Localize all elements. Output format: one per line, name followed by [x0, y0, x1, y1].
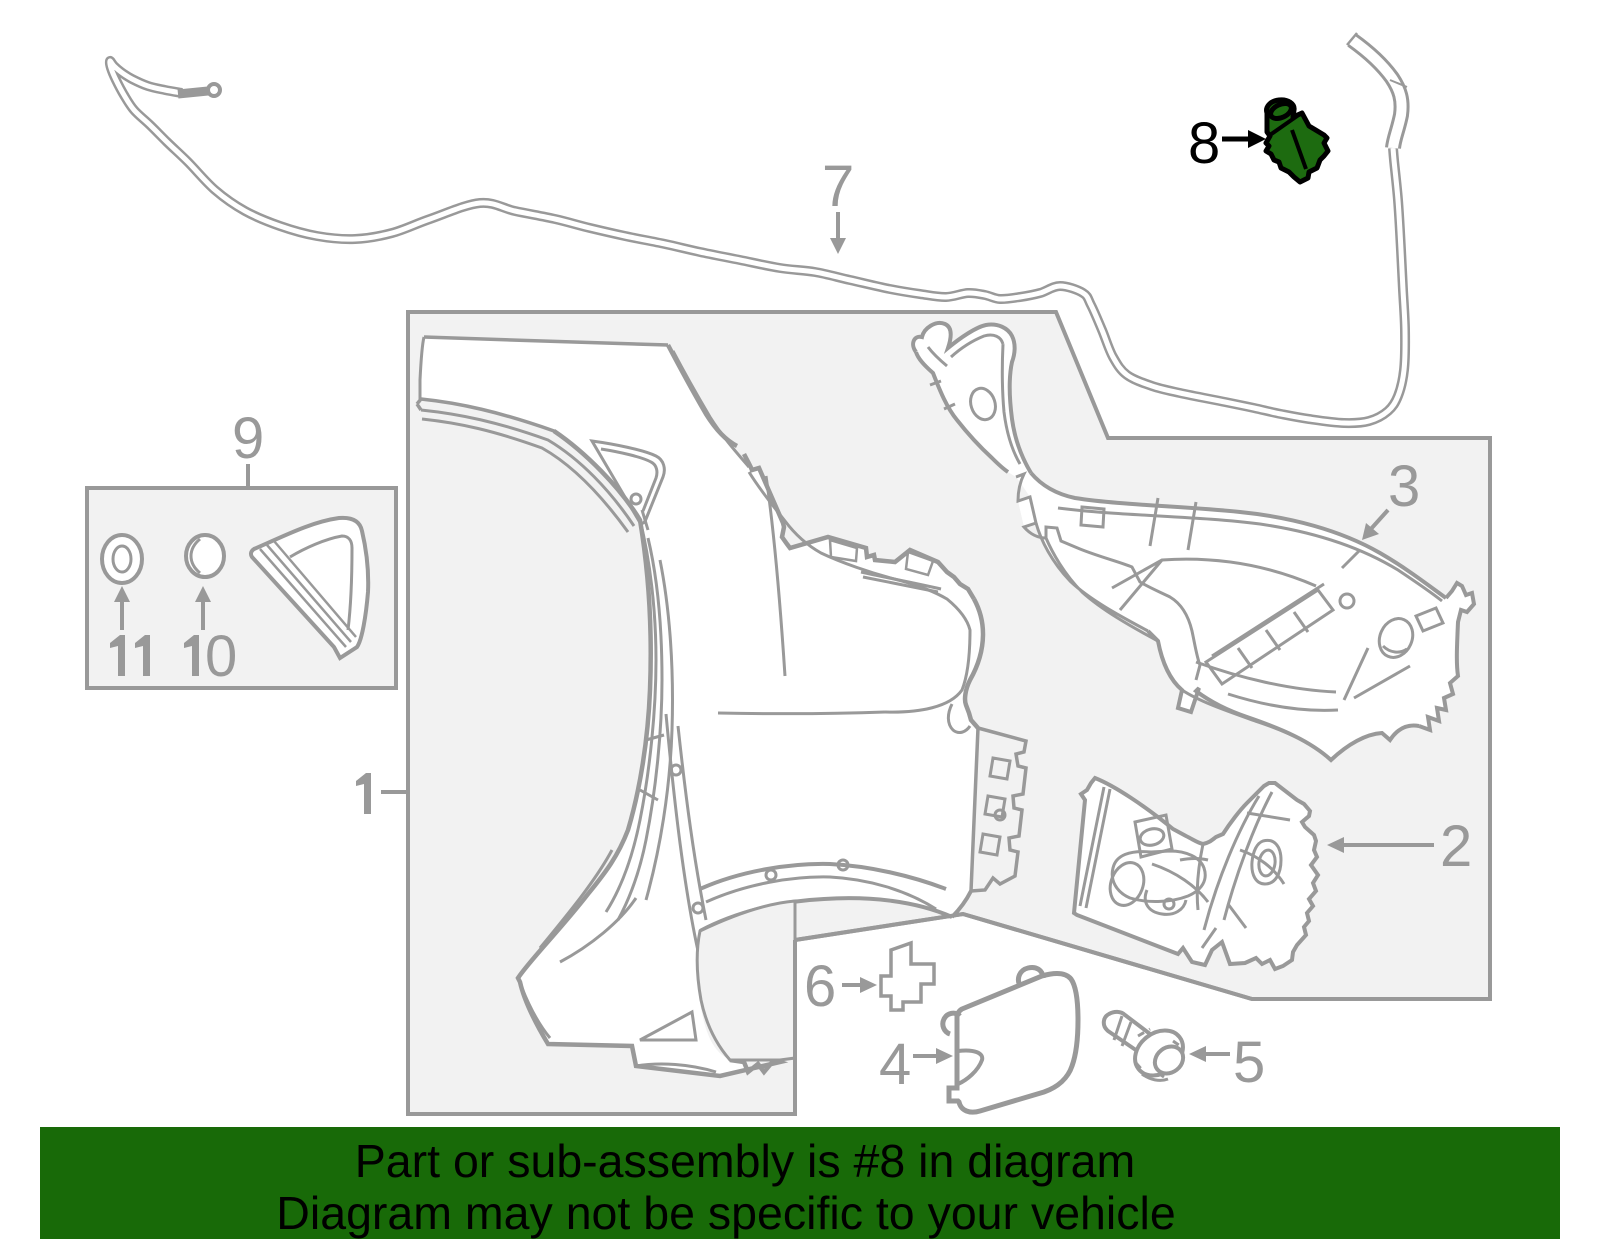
svg-text:8: 8	[1188, 111, 1220, 176]
svg-text:Part or sub-assembly is #8 in: Part or sub-assembly is #8 in diagram	[355, 1135, 1136, 1187]
svg-text:Diagram may not be specific to: Diagram may not be specific to your vehi…	[276, 1187, 1175, 1239]
svg-text:0: 0	[205, 624, 237, 689]
svg-text:5: 5	[1233, 1030, 1265, 1095]
svg-text:6: 6	[804, 954, 836, 1019]
svg-text:9: 9	[232, 406, 264, 471]
svg-text:4: 4	[879, 1032, 911, 1097]
svg-text:7: 7	[822, 154, 854, 219]
svg-text:3: 3	[1388, 454, 1420, 519]
svg-text:2: 2	[1440, 814, 1472, 879]
